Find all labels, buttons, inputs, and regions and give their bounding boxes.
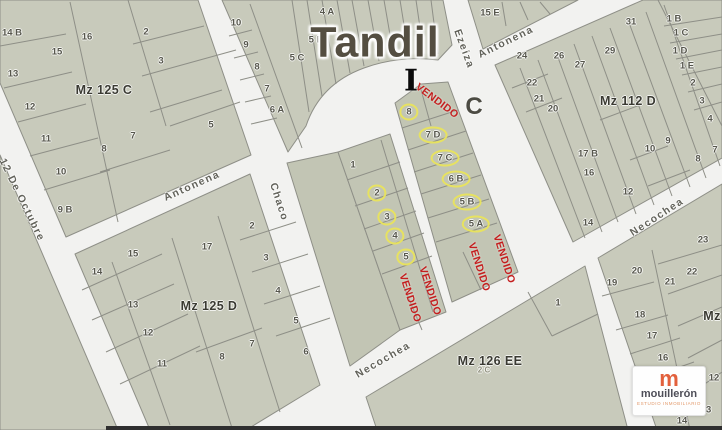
lot-label: 7 xyxy=(130,131,135,142)
lot-label: 16 xyxy=(584,168,595,179)
lot-label: 29 xyxy=(605,46,616,57)
block-letter-i-marker: I xyxy=(404,64,418,99)
lot-label: 16 xyxy=(82,32,93,43)
street-label-chaco: Chaco xyxy=(267,181,291,222)
lot-label: 21 xyxy=(665,277,676,288)
lot-label: 23 xyxy=(698,235,709,246)
block-label: Mz 125 D xyxy=(181,299,238,313)
lot-label: 22 xyxy=(687,267,698,278)
lot-map: 12 De OctubreAntonenaAntonenaChacoEzeiza… xyxy=(0,0,722,430)
realtor-tagline: estudio inmobiliario xyxy=(633,400,705,407)
lot-label-highlighted: 2 xyxy=(367,185,386,202)
lot-label: 3 xyxy=(263,253,268,264)
lot-label: 26 xyxy=(554,51,565,62)
lot-label-highlighted: 7 C xyxy=(431,150,460,167)
street-label-necochea: Necochea xyxy=(353,339,412,380)
lot-label: 16 xyxy=(658,353,669,364)
lot-label: 2 xyxy=(143,27,148,38)
sold-label: VENDIDO xyxy=(413,81,461,121)
sold-label: VENDIDO xyxy=(490,233,517,285)
lot-label: 3 xyxy=(699,96,704,107)
lot-label-highlighted: 4 xyxy=(385,228,404,245)
lot-label: 4 xyxy=(707,114,712,125)
lot-label: 10 xyxy=(56,167,67,178)
lot-label: 5 xyxy=(208,120,213,131)
street-label-necochea: Necochea xyxy=(628,195,686,239)
lot-label: 7 xyxy=(264,84,269,95)
lot-label: 7 xyxy=(712,145,717,156)
block-label: Mz 112 D xyxy=(600,94,656,108)
realtor-name: mouillerón xyxy=(633,389,705,400)
lot-label: 24 xyxy=(517,51,528,62)
lot-label: 13 xyxy=(8,69,19,80)
lot-label: 15 xyxy=(52,47,63,58)
lot-label-highlighted: 5 A xyxy=(462,216,490,233)
lot-label: 6 xyxy=(303,347,308,358)
lot-label: 17 xyxy=(202,242,213,253)
lot-label: 11 xyxy=(41,134,51,145)
lot-label: 15 xyxy=(128,249,139,260)
lot-label: 9 xyxy=(243,40,248,51)
lot-label: 6 A xyxy=(270,105,284,116)
lot-label: 20 xyxy=(632,266,643,277)
lot-label: 1 D xyxy=(673,46,688,57)
lot-label: 5 xyxy=(293,316,298,327)
lot-label: 31 xyxy=(626,17,637,28)
lot-label: 1 xyxy=(555,298,560,309)
lot-label: 4 A xyxy=(320,7,334,18)
lot-label: 5 C xyxy=(290,53,305,64)
lot-label-highlighted: 5 xyxy=(396,249,415,266)
lot-label: 8 xyxy=(219,352,224,363)
lot-label: 4 xyxy=(275,286,280,297)
block-label: Mz 125 C xyxy=(76,83,133,97)
lot-label: 10 xyxy=(645,144,656,155)
lot-label: 10 xyxy=(231,18,242,29)
realtor-logo: m mouillerón estudio inmobiliario xyxy=(632,366,706,416)
lot-label: 19 xyxy=(607,278,618,289)
lot-label-highlighted: 5 B xyxy=(453,194,482,211)
lot-label-highlighted: 7 D xyxy=(419,127,448,144)
lot-label: 1 B xyxy=(667,14,682,25)
lot-label: 8 xyxy=(254,62,259,73)
lot-label: 14 xyxy=(92,267,103,278)
lot-label: 12 xyxy=(623,187,634,198)
lot-label: 12 xyxy=(25,102,36,113)
lot-label-highlighted: 3 xyxy=(377,209,396,226)
realtor-monogram-icon: m xyxy=(633,369,705,389)
lot-label-highlighted: 6 B xyxy=(442,171,471,188)
lot-label: 17 xyxy=(647,331,658,342)
lot-label: 17 B xyxy=(578,149,598,160)
lot-label: 3 xyxy=(158,56,163,67)
sold-label: VENDIDO xyxy=(465,241,492,293)
street-label-antonena: Antonena xyxy=(162,168,222,204)
lot-label: 12 xyxy=(709,373,720,384)
lot-label: 2 xyxy=(690,78,695,89)
lot-label: 9 xyxy=(665,136,670,147)
lot-label: 1 E xyxy=(680,61,694,72)
sub-label: 2 C xyxy=(478,366,490,375)
lot-label: 14 B xyxy=(2,28,22,39)
lot-label: 8 xyxy=(695,154,700,165)
sold-label: VENDIDO xyxy=(416,265,443,317)
block-label: Mz xyxy=(703,309,720,323)
lot-label: 2 xyxy=(249,221,254,232)
lot-label: 7 xyxy=(249,339,254,350)
lot-label: 1 xyxy=(350,160,355,171)
lot-label: 27 xyxy=(575,60,586,71)
lot-label: 13 xyxy=(128,300,139,311)
street-label-ezeiza: Ezeiza xyxy=(451,28,476,71)
map-title: Tandil xyxy=(310,19,439,68)
lot-label-highlighted: 8 xyxy=(399,104,418,121)
block-letter-c-marker: C xyxy=(465,93,482,121)
street-label-12-de-octubre: 12 De Octubre xyxy=(0,157,47,244)
lot-label: 1 C xyxy=(674,28,689,39)
lot-label: 14 xyxy=(677,416,688,427)
lot-label: 21 xyxy=(534,94,545,105)
lot-label: 15 E xyxy=(480,8,500,19)
lot-label: 22 xyxy=(527,78,538,89)
lot-label: 14 xyxy=(583,218,594,229)
lot-label: 18 xyxy=(635,310,646,321)
lot-label: 8 xyxy=(101,144,106,155)
lot-label: 12 xyxy=(143,328,154,339)
lot-label: 9 B xyxy=(58,205,73,216)
lot-label: 20 xyxy=(548,104,559,115)
lot-label: 11 xyxy=(157,359,167,370)
